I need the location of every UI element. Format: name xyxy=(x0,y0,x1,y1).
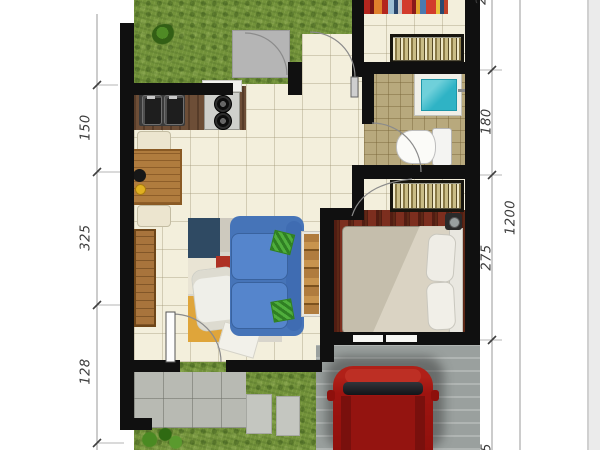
bedroom-window-divider xyxy=(383,334,386,343)
stove-burner-icon xyxy=(214,112,232,130)
dim-label-325: 325 xyxy=(79,218,94,258)
bed-pillow xyxy=(426,281,456,330)
ladder-shelf-rungs xyxy=(304,234,319,314)
cup-icon xyxy=(135,184,146,195)
car-mirror-icon xyxy=(431,390,439,401)
stepping-stone xyxy=(276,396,300,436)
wall-living-bottom-left xyxy=(120,360,180,372)
stepping-stone xyxy=(246,394,272,434)
sink-basin xyxy=(164,95,184,125)
car-roof xyxy=(341,396,425,450)
car-mirror-icon xyxy=(327,390,335,401)
wall-kitchen-top xyxy=(120,83,233,95)
wall-left-foot xyxy=(120,418,152,430)
plate-icon xyxy=(133,169,146,182)
wall-bathroom-left xyxy=(362,62,374,124)
wall-garden-door-jamb xyxy=(288,62,302,95)
bed-pillow xyxy=(425,233,456,283)
dim-label-1200: 1200 xyxy=(504,198,519,238)
wall-bathroom-top xyxy=(362,62,470,74)
stove-burner-icon xyxy=(214,95,232,113)
car-windshield xyxy=(343,382,423,395)
dining-chair xyxy=(137,205,171,227)
wardrobe-rack-top xyxy=(390,34,464,64)
sink-faucet-icon xyxy=(169,96,177,99)
dim-label-128: 128 xyxy=(79,352,94,392)
page-edge-band xyxy=(589,0,600,450)
garden-shrub-icon xyxy=(152,24,178,46)
toilet-bowl xyxy=(396,130,436,164)
bedroom-wardrobe xyxy=(390,180,464,212)
living-rug-patch-navy xyxy=(188,218,220,258)
wall-bathroom-bottom xyxy=(362,165,470,179)
back-door-mat xyxy=(232,30,290,78)
bedside-object-top xyxy=(449,217,460,228)
sink-faucet-icon xyxy=(147,96,155,99)
dim-label-top-partial: 2 xyxy=(475,0,490,21)
hallway-notch xyxy=(302,34,352,84)
wall-right-outer xyxy=(465,0,480,345)
sideboard xyxy=(134,229,156,327)
wall-bedroom-top xyxy=(320,208,364,220)
dim-label-bottom-partial: 5 xyxy=(480,428,495,450)
sink-basin xyxy=(142,95,162,125)
water-basin-water xyxy=(421,79,457,111)
wall-living-bottom-right xyxy=(226,360,322,372)
sofa-green-pillow xyxy=(270,298,294,322)
dim-label-180: 180 xyxy=(480,102,495,142)
floor-plan-canvas: 150 325 128 2 180 275 5 1200 xyxy=(0,0,600,450)
dim-label-150: 150 xyxy=(79,108,94,148)
striped-rug xyxy=(362,0,448,14)
dim-label-275: 275 xyxy=(480,238,495,278)
car-hood xyxy=(345,369,421,383)
